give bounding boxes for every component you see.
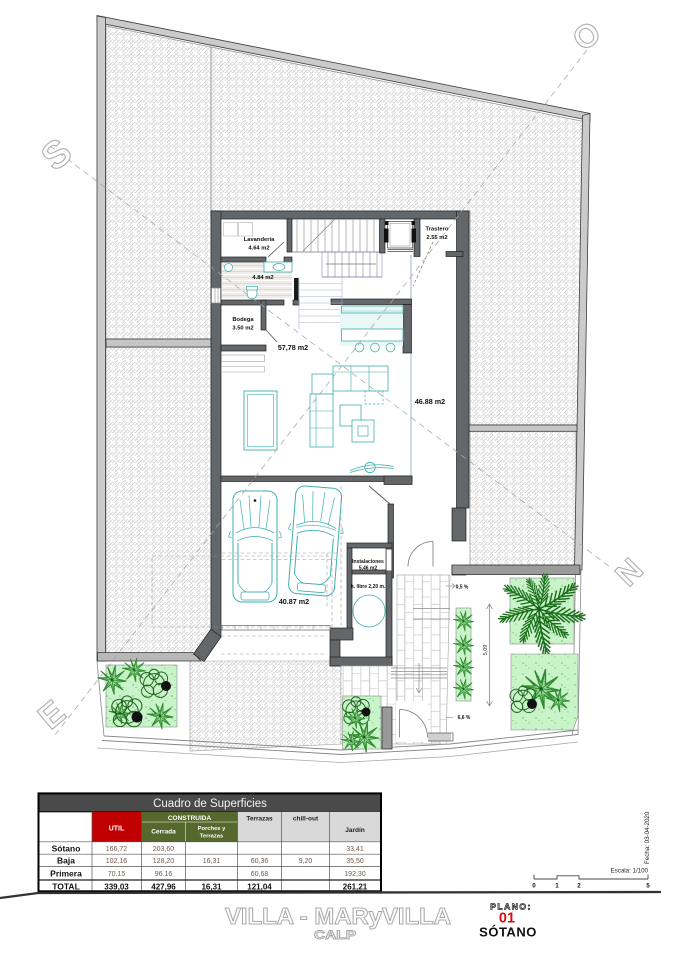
svg-text:Baja: Baja [57, 855, 75, 865]
svg-text:9,20: 9,20 [299, 858, 313, 865]
svg-text:57,78 m2: 57,78 m2 [278, 343, 308, 352]
svg-text:6,6 %: 6,6 % [458, 715, 471, 721]
svg-text:261,21: 261,21 [343, 882, 368, 891]
svg-text:427,96: 427,96 [151, 882, 176, 891]
svg-text:2.55 m2: 2.55 m2 [426, 235, 447, 241]
svg-text:chill-out: chill-out [293, 816, 319, 823]
svg-text:0: 0 [532, 883, 536, 890]
svg-text:Terrazas: Terrazas [200, 834, 223, 840]
svg-text:70.15: 70.15 [108, 871, 126, 878]
svg-text:16,31: 16,31 [201, 882, 222, 891]
svg-text:Lavandería: Lavandería [244, 237, 275, 243]
svg-text:46.88 m2: 46.88 m2 [415, 397, 445, 406]
svg-text:96.16: 96.16 [155, 871, 173, 878]
svg-text:4.64 m2: 4.64 m2 [248, 246, 269, 252]
svg-text:3.50 m2: 3.50 m2 [232, 326, 253, 332]
svg-text:5,09: 5,09 [483, 645, 489, 656]
svg-text:4.84 m2: 4.84 m2 [252, 275, 273, 281]
svg-text:Porches y: Porches y [198, 826, 226, 832]
svg-text:Fecha: 03-04-2020: Fecha: 03-04-2020 [644, 811, 651, 864]
svg-text:35,50: 35,50 [346, 858, 364, 865]
svg-text:128,20: 128,20 [153, 858, 175, 865]
svg-text:VILLA - MARyVILLA: VILLA - MARyVILLA [225, 903, 451, 929]
svg-text:Primera: Primera [50, 869, 82, 879]
svg-text:192,30: 192,30 [344, 871, 366, 878]
svg-text:102,16: 102,16 [106, 858, 128, 865]
svg-text:SÓTANO: SÓTANO [479, 925, 537, 940]
svg-text:Jardín: Jardín [345, 827, 365, 834]
svg-text:16,31: 16,31 [203, 858, 221, 865]
svg-text:Escala: 1/100: Escala: 1/100 [611, 868, 649, 875]
svg-text:203,60: 203,60 [153, 846, 175, 853]
svg-text:Bodega: Bodega [232, 317, 254, 323]
svg-text:166,72: 166,72 [106, 846, 128, 853]
svg-text:h. libre 2,20 m.: h. libre 2,20 m. [351, 584, 386, 590]
svg-text:Sótano: Sótano [52, 843, 81, 853]
svg-text:339,03: 339,03 [104, 882, 129, 891]
svg-text:60,36: 60,36 [251, 858, 269, 865]
svg-text:UTIL: UTIL [109, 826, 125, 833]
svg-text:2: 2 [577, 883, 581, 890]
svg-text:1: 1 [555, 883, 559, 890]
svg-text:Terrazas: Terrazas [246, 816, 273, 823]
svg-text:Cuadro de Superficies: Cuadro de Superficies [153, 798, 267, 810]
svg-text:121,04: 121,04 [247, 882, 272, 891]
svg-text:5.46 m2: 5.46 m2 [359, 566, 378, 572]
svg-text:5: 5 [646, 883, 650, 890]
svg-text:0,5 %: 0,5 % [456, 585, 469, 591]
svg-text:33,41: 33,41 [346, 846, 364, 853]
svg-text:Trastero: Trastero [426, 227, 449, 233]
svg-text:CALP: CALP [314, 930, 356, 942]
svg-text:Instalaciones: Instalaciones [352, 559, 384, 565]
svg-text:40.87 m2: 40.87 m2 [279, 597, 309, 606]
svg-text:TOTAL: TOTAL [52, 882, 80, 892]
svg-text:Cerrada: Cerrada [151, 829, 176, 836]
svg-text:CONSTRUIDA: CONSTRUIDA [168, 815, 212, 822]
svg-text:60,68: 60,68 [251, 871, 269, 878]
